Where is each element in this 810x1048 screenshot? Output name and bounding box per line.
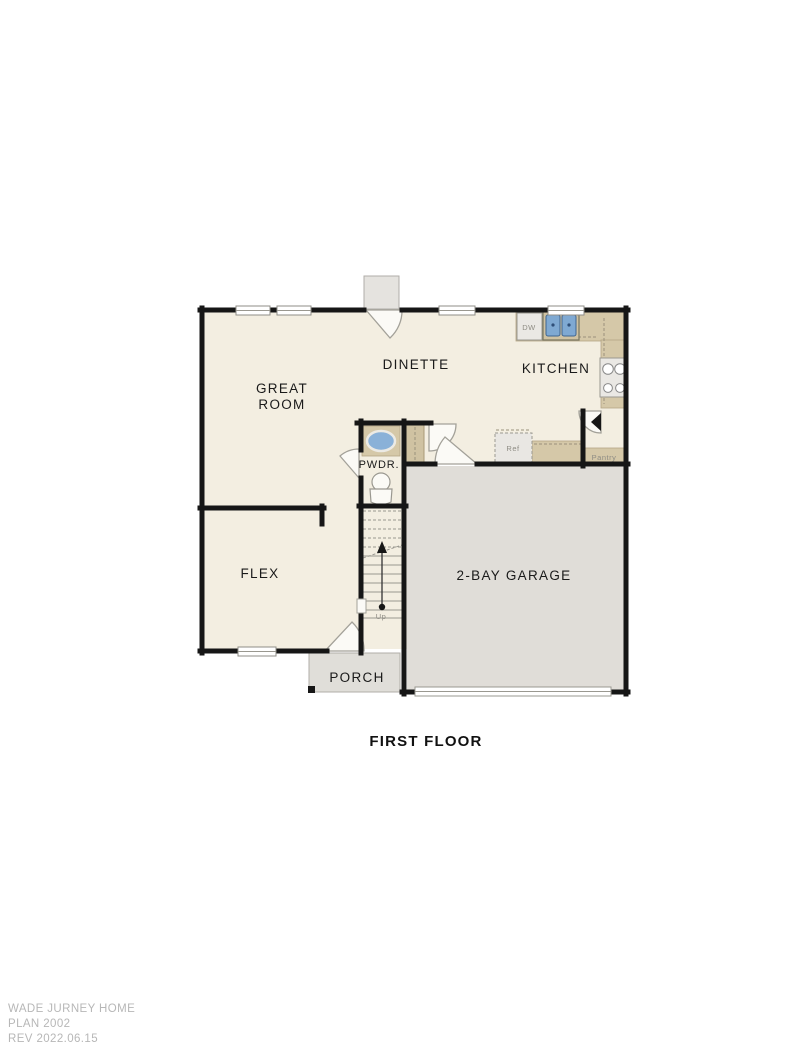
watermark-line-3: REV 2022.06.15 (8, 1033, 98, 1045)
floor-plan-page: GREAT ROOM DINETTE KITCHEN PWDR. FLEX 2-… (0, 0, 810, 1048)
sink-drain-left (551, 323, 554, 326)
stair-newel-notch (357, 599, 366, 613)
refrigerator-label: Ref (506, 444, 520, 453)
garage-label: 2-BAY GARAGE (457, 568, 572, 583)
kitchen-label: KITCHEN (522, 361, 590, 376)
toilet (370, 473, 392, 505)
floor-plan-drawing: GREAT ROOM DINETTE KITCHEN PWDR. FLEX 2-… (0, 0, 810, 1048)
porch-post (308, 686, 315, 693)
stairs-up-label: Up (376, 612, 387, 621)
burner (603, 364, 614, 375)
dishwasher-label: DW (522, 323, 536, 332)
great-room-label-line1: GREAT (256, 381, 308, 396)
watermark-line-1: WADE JURNEY HOME (8, 1003, 135, 1015)
sink-drain-right (567, 323, 570, 326)
floor-title: FIRST FLOOR (369, 733, 482, 750)
burner (616, 384, 625, 393)
dinette-label: DINETTE (383, 357, 450, 372)
kitchen-sink (543, 312, 579, 340)
flex-room-label: FLEX (241, 566, 280, 581)
stairs-up-arrow-dot (379, 604, 385, 610)
powder-sink (362, 426, 400, 456)
powder-room-label: PWDR. (359, 459, 400, 471)
toilet-bowl (372, 473, 390, 491)
burner (604, 384, 613, 393)
range-stove (600, 358, 627, 397)
powder-basin (367, 431, 395, 451)
great-room-label-line2: ROOM (258, 397, 305, 412)
entry-closet (406, 425, 424, 462)
pantry-label: Pantry (592, 453, 617, 462)
toilet-base (370, 489, 392, 505)
porch-label: PORCH (329, 670, 384, 685)
entry-stoop (364, 276, 399, 309)
watermark-line-2: PLAN 2002 (8, 1018, 70, 1030)
garage-door (415, 687, 611, 696)
